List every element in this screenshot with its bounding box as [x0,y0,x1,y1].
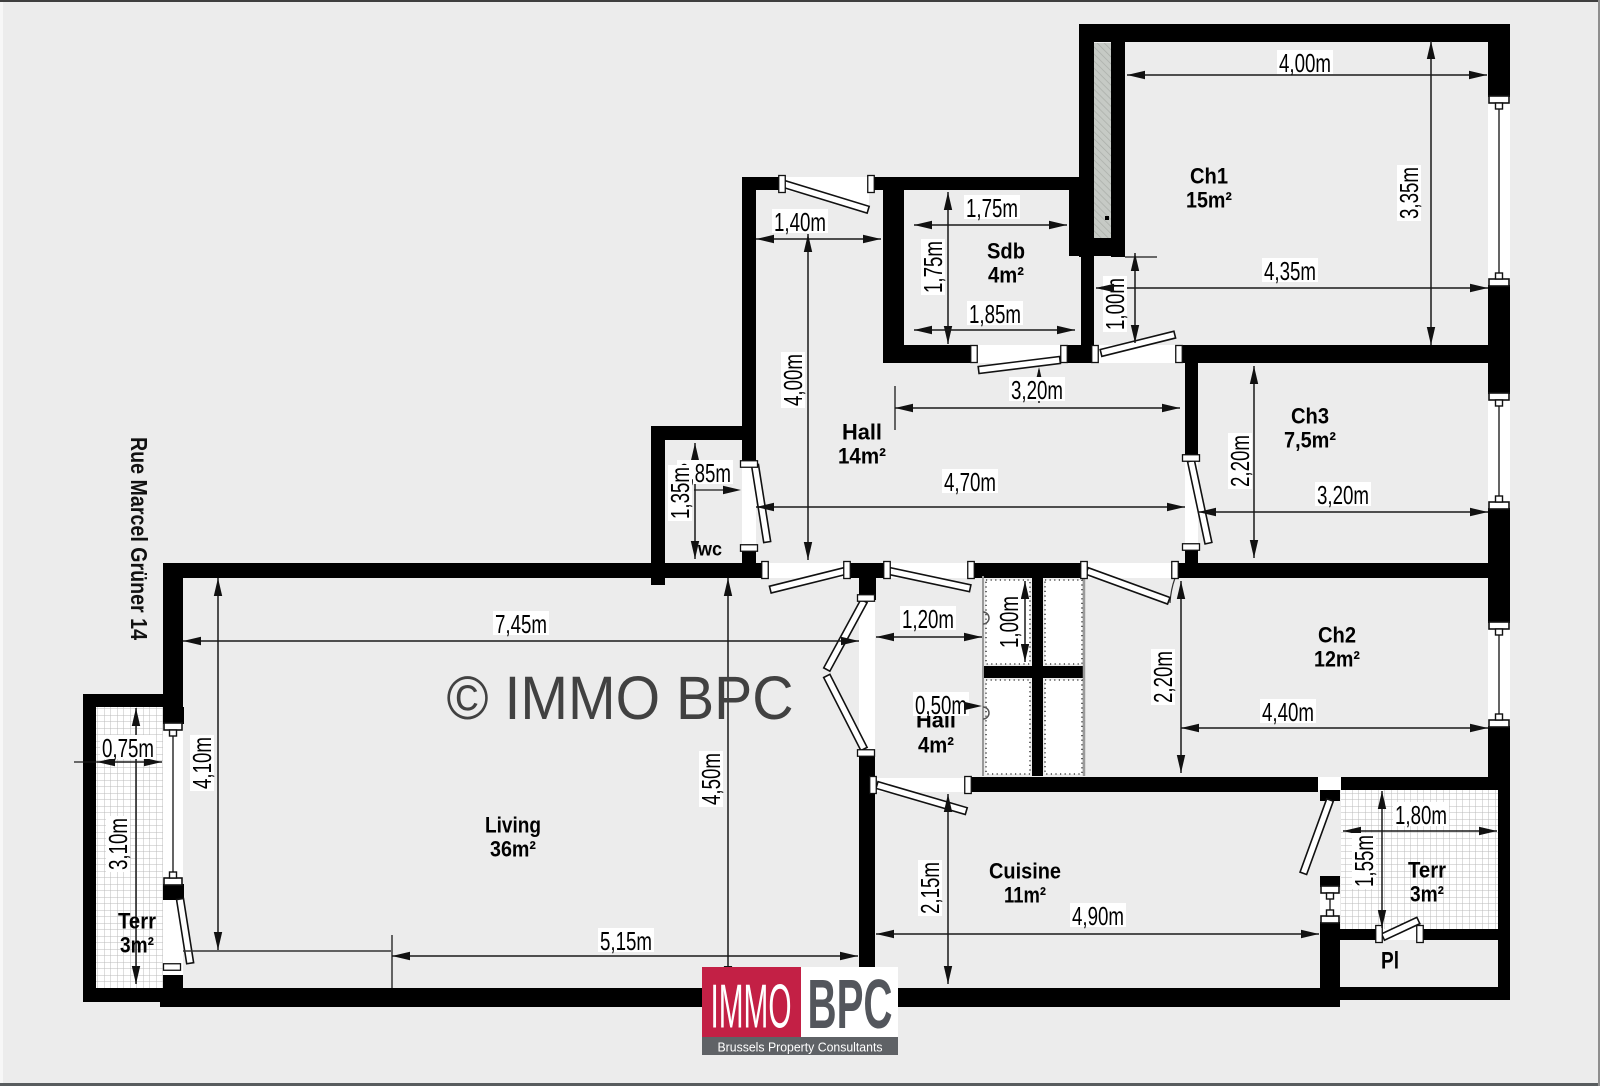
svg-text:3m²: 3m² [120,933,154,958]
svg-text:1,00m: 1,00m [994,596,1024,648]
svg-text:Terr: Terr [118,909,156,934]
svg-text:3,10m: 3,10m [103,818,133,870]
svg-text:IMMO: IMMO [711,973,792,1042]
svg-text:Terr: Terr [1408,858,1446,883]
svg-text:BPC: BPC [808,965,893,1043]
svg-text:11m²: 11m² [1004,883,1046,908]
svg-text:Rue Marcel Grüner 14: Rue Marcel Grüner 14 [126,437,152,640]
svg-text:© IMMO BPC: © IMMO BPC [447,664,794,732]
svg-text:4,35m: 4,35m [1264,256,1316,286]
svg-text:Cuisine: Cuisine [989,859,1061,884]
svg-text:1,40m: 1,40m [774,207,826,237]
svg-text:4m²: 4m² [918,733,954,758]
svg-text:3,35m: 3,35m [1394,167,1424,219]
svg-text:2,20m: 2,20m [1225,435,1255,487]
svg-text:1,55m: 1,55m [1349,835,1379,887]
svg-text:0,75m: 0,75m [102,733,154,763]
svg-text:4,10m: 4,10m [187,737,217,789]
svg-text:7,5m²: 7,5m² [1284,428,1336,453]
svg-text:Hall: Hall [842,420,882,445]
svg-text:wc: wc [697,540,722,561]
svg-text:Ch1: Ch1 [1190,164,1228,189]
svg-text:14m²: 14m² [838,444,886,469]
svg-text:1,85m: 1,85m [969,299,1021,329]
svg-text:4,70m: 4,70m [944,467,996,497]
svg-text:3,20m: 3,20m [1011,375,1063,405]
svg-text:Ch3: Ch3 [1291,404,1329,429]
svg-text:4m²: 4m² [988,263,1024,288]
svg-text:7,45m: 7,45m [495,609,547,639]
svg-text:0,50m: 0,50m [915,690,967,720]
svg-text:2,20m: 2,20m [1148,651,1178,703]
svg-text:1,75m: 1,75m [918,241,948,293]
svg-text:15m²: 15m² [1186,188,1232,213]
svg-text:4,00m: 4,00m [778,354,808,406]
svg-text:4,40m: 4,40m [1262,697,1314,727]
svg-text:Pl: Pl [1381,948,1399,975]
svg-text:4,50m: 4,50m [696,753,726,805]
svg-text:3,20m: 3,20m [1317,480,1369,510]
svg-text:4,00m: 4,00m [1279,48,1331,78]
svg-text:3m²: 3m² [1410,882,1444,907]
svg-text:1,00m: 1,00m [1100,278,1130,330]
svg-text:36m²: 36m² [490,837,536,862]
svg-text:4,90m: 4,90m [1072,901,1124,931]
svg-text:1,35m: 1,35m [665,467,695,519]
svg-text:12m²: 12m² [1314,647,1360,672]
svg-text:5,15m: 5,15m [600,926,652,956]
svg-text:Brussels Property Consultants: Brussels Property Consultants [718,1040,883,1055]
svg-text:1,20m: 1,20m [902,604,954,634]
svg-text:Ch2: Ch2 [1318,623,1356,648]
svg-text:1,75m: 1,75m [966,193,1018,223]
svg-text:1,80m: 1,80m [1395,800,1447,830]
svg-text:Living: Living [485,813,541,838]
svg-text:Sdb: Sdb [987,239,1025,264]
svg-text:2,15m: 2,15m [915,862,945,914]
